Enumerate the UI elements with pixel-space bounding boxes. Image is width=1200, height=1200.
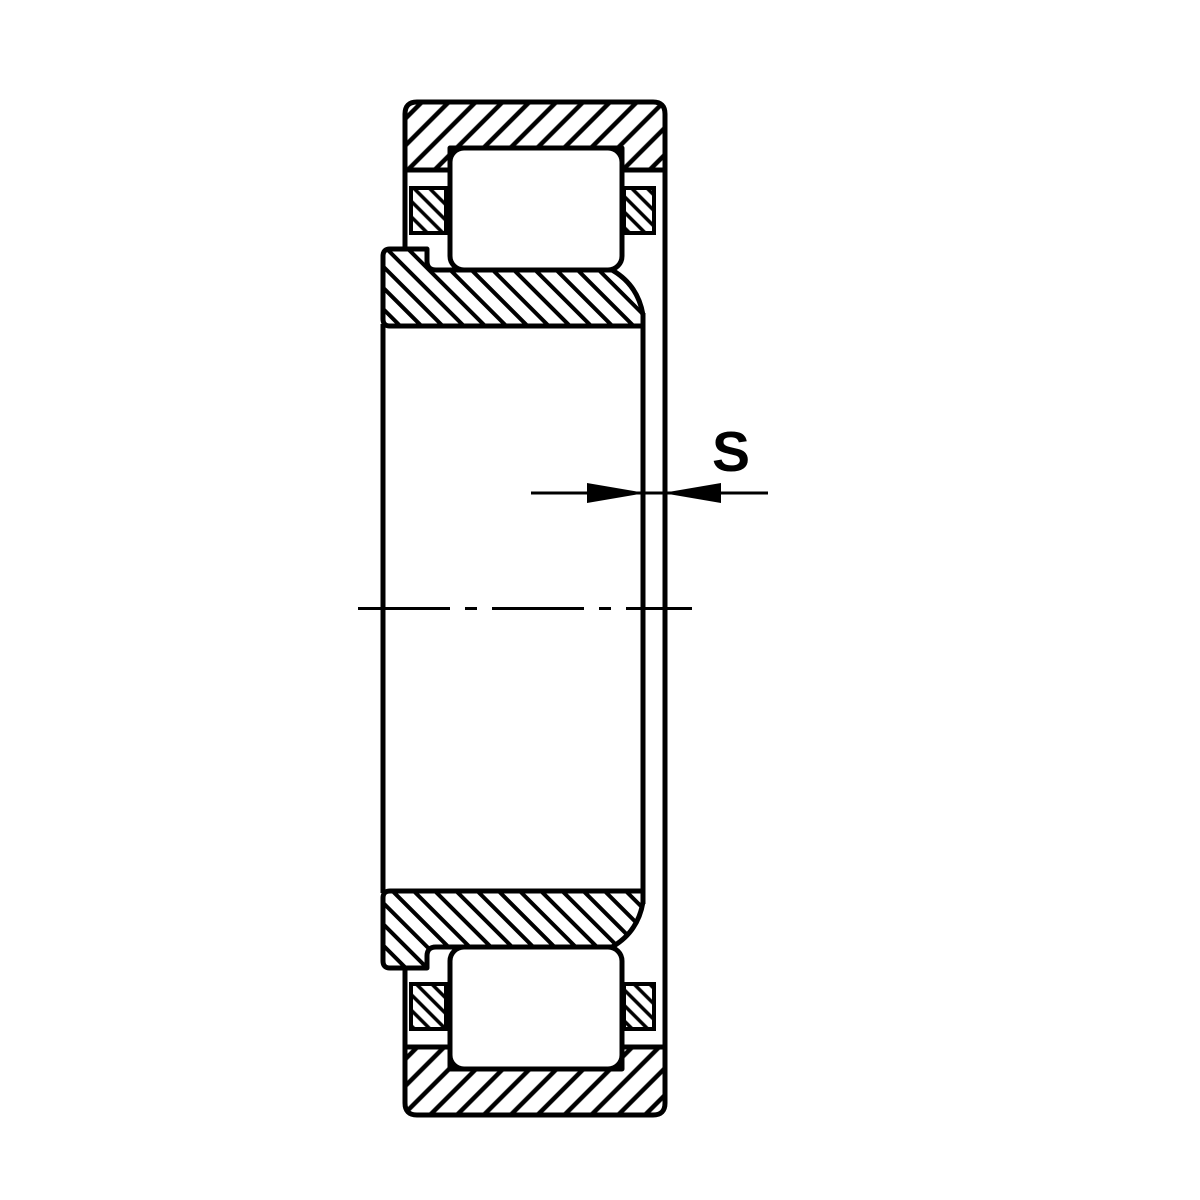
bearing-section-drawing: S [0,0,1200,1200]
cage-section-bottom-right [624,984,654,1029]
cage-section-top-left [411,188,446,233]
technical-drawing-page: S [0,0,1200,1200]
dimension-arrow-right [663,483,722,503]
cage-section-top-right [624,188,654,233]
dimension-label-s: S [712,420,750,484]
cylindrical-roller-top [450,148,622,270]
axial-displacement-dimension: S [531,420,768,503]
dimension-arrow-left [587,483,646,503]
cylindrical-roller-bottom [450,947,622,1069]
cage-section-bottom-left [411,984,446,1029]
